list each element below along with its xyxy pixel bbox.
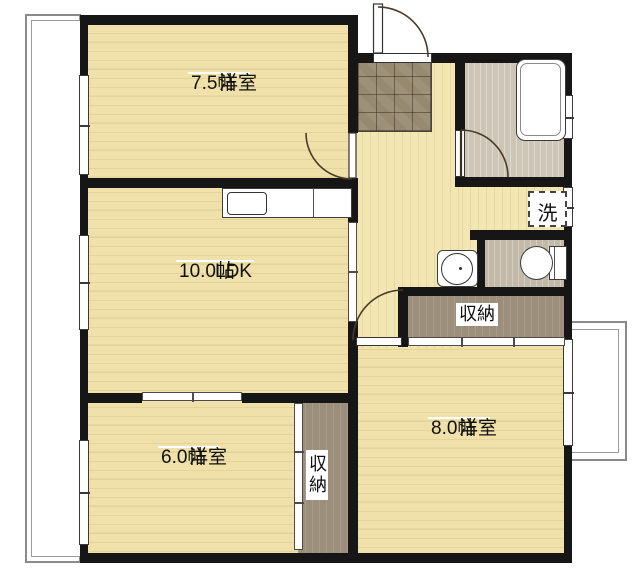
sliding-door-ldk-hallway xyxy=(348,222,357,322)
kitchen-counter xyxy=(222,188,352,218)
wall-center-vertical-upper xyxy=(348,15,358,133)
wall-between-75-ldk xyxy=(80,178,358,188)
washing-machine-label: 洗 xyxy=(530,197,565,226)
window-room60 xyxy=(79,440,89,545)
room-size: 7.5帖 xyxy=(191,73,236,95)
washbasin-drain-dot xyxy=(459,267,462,270)
window-ldk xyxy=(79,235,89,330)
room-size: 10.0帖 xyxy=(179,261,235,283)
slider-tick xyxy=(349,271,358,273)
wall-closet-upper-top xyxy=(398,287,572,296)
wall-top-left xyxy=(80,15,358,25)
room-western-6-0-floor xyxy=(80,398,298,558)
wall-left-1 xyxy=(80,15,88,75)
window-sash-tick xyxy=(80,125,90,127)
room-western-6-0-label: 洋室 6.0帖 xyxy=(158,446,220,448)
balcony-right-inner-rail xyxy=(572,329,619,453)
toilet-bowl xyxy=(520,246,553,280)
slider-tick xyxy=(192,393,194,402)
room-western-8-0-floor xyxy=(354,340,568,558)
balcony-left-inner-rail xyxy=(31,20,81,557)
window-sash-tick xyxy=(80,282,90,284)
window-sash-tick xyxy=(80,492,90,494)
kitchen-counter-divider xyxy=(313,189,314,217)
slider-tick xyxy=(513,338,515,347)
wall-right-3 xyxy=(564,227,572,339)
slider-tick xyxy=(295,451,304,453)
window-room80-balcony xyxy=(563,339,573,446)
room-western-7-5-floor xyxy=(80,15,358,188)
bathtub-inner-rim xyxy=(520,63,561,136)
entry-genkan-tile xyxy=(358,62,432,132)
window-sash-tick xyxy=(564,392,574,394)
slider-tick xyxy=(461,338,463,347)
doorway-room80 xyxy=(356,337,402,346)
wall-bathroom-left xyxy=(455,53,465,130)
room-western-8-0-label: 洋室 8.0帖 xyxy=(428,417,490,419)
room-ldk-label: LDK 10.0帖 xyxy=(176,260,254,262)
wall-between-ldk-60-b xyxy=(242,393,358,403)
entrance-door-leaf xyxy=(374,4,383,53)
wall-toilet-left xyxy=(477,240,485,290)
room-size: 6.0帖 xyxy=(161,447,206,469)
closet-lower-label: 収納 xyxy=(306,450,328,500)
wall-center-vertical-lower xyxy=(348,321,358,563)
washing-machine-space: 洗 xyxy=(528,191,567,227)
bathtub xyxy=(516,59,566,141)
room-western-7-5-label: 洋室 7.5帖 xyxy=(188,72,250,74)
sliding-door-closet-lower xyxy=(294,403,303,550)
floor-plan: 洗 洋室 7.5帖 LDK 10.0帖 洋室 6.0帖 洋室 8.0帖 収納 収… xyxy=(0,0,640,573)
wall-bathroom-bottom xyxy=(455,177,572,187)
window-room75 xyxy=(79,75,89,175)
kitchen-sink xyxy=(227,192,267,215)
doorway-bathroom xyxy=(455,130,465,177)
toilet-tank-line xyxy=(554,247,555,279)
washbasin-bowl xyxy=(441,253,473,285)
wall-bottom xyxy=(80,553,572,563)
doorway-entrance xyxy=(373,53,432,63)
washbasin xyxy=(437,250,478,287)
entrance-door-arc xyxy=(378,7,428,57)
room-size: 8.0帖 xyxy=(431,418,476,440)
wall-right-4 xyxy=(564,446,572,563)
closet-upper-label: 収納 xyxy=(456,303,498,326)
sliding-door-closet-upper xyxy=(408,337,565,346)
sliding-door-ldk-room60 xyxy=(142,392,242,401)
wall-left-3 xyxy=(80,330,88,440)
wall-toilet-top xyxy=(470,230,572,240)
slider-tick xyxy=(295,502,304,504)
wall-between-ldk-60-a xyxy=(80,393,142,403)
